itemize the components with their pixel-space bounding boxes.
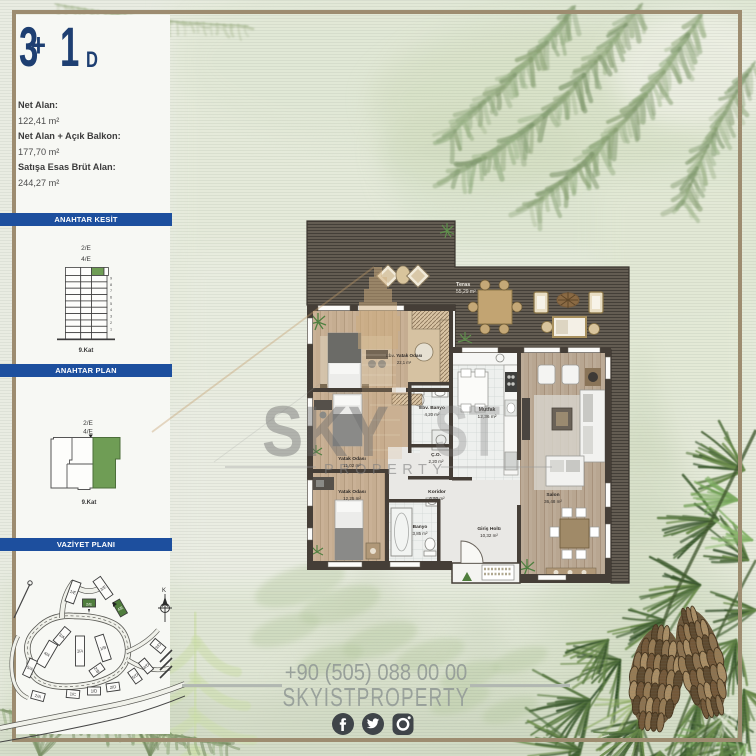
svg-text:12,25 m²: 12,25 m²: [343, 496, 361, 501]
svg-text:1/C: 1/C: [70, 691, 77, 697]
svg-text:2/D: 2/D: [109, 684, 116, 690]
svg-text:2/E: 2/E: [83, 420, 93, 427]
svg-text:ST: ST: [434, 393, 500, 472]
svg-text:5: 5: [110, 302, 112, 306]
svg-text:3: 3: [110, 315, 112, 319]
svg-text:3,85 m²: 3,85 m²: [413, 531, 428, 536]
svg-text:2/E: 2/E: [81, 245, 91, 252]
svg-text:10,32 m²: 10,32 m²: [480, 533, 498, 538]
svg-text:9.Kat: 9.Kat: [82, 500, 97, 506]
svg-text:PROPERTY: PROPERTY: [324, 462, 448, 478]
svg-text:SKY: SKY: [262, 393, 389, 472]
svg-text:2/E: 2/E: [86, 602, 92, 607]
svg-text:1/D: 1/D: [91, 689, 98, 694]
svg-text:36,48 m²: 36,48 m²: [544, 499, 562, 504]
svg-text:9.Kat: 9.Kat: [79, 348, 94, 354]
svg-text:6,92 m²: 6,92 m²: [429, 496, 445, 501]
svg-text:4/E: 4/E: [81, 256, 91, 263]
svg-text:Salon: Salon: [546, 492, 559, 498]
svg-text:K: K: [162, 588, 166, 594]
svg-text:6: 6: [110, 296, 112, 300]
svg-text:1/A: 1/A: [77, 649, 83, 654]
svg-text:8: 8: [110, 283, 112, 287]
svg-text:Koridor: Koridor: [428, 489, 446, 495]
svg-text:4: 4: [110, 308, 112, 312]
svg-text:7: 7: [110, 289, 112, 293]
svg-text:9: 9: [110, 277, 112, 281]
svg-text:4/E: 4/E: [83, 429, 93, 436]
svg-text:Yatak Odası: Yatak Odası: [338, 489, 366, 495]
svg-text:1: 1: [110, 327, 112, 331]
svg-text:Giriş Holü: Giriş Holü: [477, 526, 500, 532]
svg-text:Banyo: Banyo: [413, 524, 428, 530]
svg-text:2: 2: [110, 321, 112, 325]
